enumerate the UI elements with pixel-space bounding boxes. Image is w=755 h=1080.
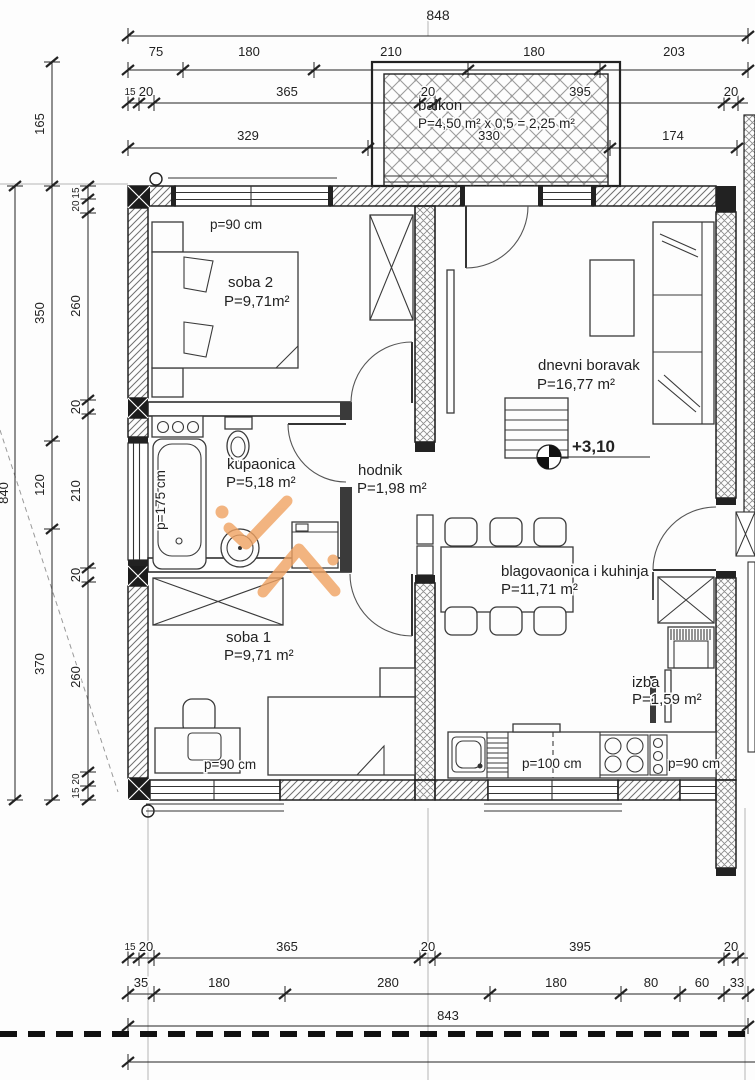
window-living [540, 186, 593, 206]
dim: 329 [237, 128, 259, 143]
counter-note-right: p=90 cm [668, 756, 720, 771]
dim: 75 [149, 44, 163, 59]
dim: 260 [68, 295, 83, 317]
entry-door [653, 507, 716, 570]
dim: 180 [523, 44, 545, 59]
soba1-wall-note: p=90 cm [204, 757, 256, 772]
soba2-label: soba 2 [228, 274, 273, 291]
soba1-door [350, 574, 412, 636]
dim: 365 [276, 84, 298, 99]
dim: 15 [124, 87, 136, 98]
dimensions-left: 165 350 120 370 840 15 20 260 20 210 20 … [0, 57, 96, 805]
soba1-area: P=9,71 m² [224, 647, 294, 664]
dim: 174 [662, 128, 684, 143]
dim: 203 [663, 44, 685, 59]
diagonal-reference-line [0, 430, 118, 792]
neighbour-fragments [736, 115, 755, 752]
coffee-table [590, 260, 634, 336]
chair [534, 607, 566, 635]
living-room-furniture [447, 222, 714, 469]
dim-bottom-total: 843 [437, 1008, 459, 1023]
fridge [658, 577, 714, 623]
izba-label: izba [632, 674, 660, 691]
bathroom-door [288, 424, 346, 482]
dim: 280 [377, 975, 399, 990]
elevation-value: +3,10 [572, 437, 615, 456]
chair [445, 607, 477, 635]
dim: 20 [421, 84, 435, 99]
kupaonica-area: P=5,18 m² [226, 474, 296, 491]
soba2-area: P=9,71m² [224, 293, 289, 310]
dim: 35 [134, 975, 148, 990]
dim: 120 [32, 474, 47, 496]
chair [490, 607, 522, 635]
balcony-door-opening [463, 186, 540, 206]
dnevni-boravak-label: dnevni boravak [538, 357, 640, 374]
dim: 20 [71, 200, 82, 212]
window-kitchen [488, 780, 618, 800]
dimensions-bottom: 15 20 365 20 395 20 35 180 280 180 80 60… [0, 939, 755, 1070]
dim: 395 [569, 939, 591, 954]
washing-machine [152, 416, 203, 437]
counter-note: p=100 cm [522, 756, 582, 771]
dim: 20 [71, 773, 82, 785]
hood [513, 724, 560, 732]
dim: 20 [724, 939, 738, 954]
window-bathroom [128, 443, 148, 560]
dim: 20 [724, 84, 738, 99]
dim: 365 [276, 939, 298, 954]
dim: 20 [68, 568, 83, 582]
hodnik-area: P=1,98 m² [357, 480, 427, 497]
blagovaonica-area: P=11,71 m² [501, 581, 578, 598]
dim: 180 [238, 44, 260, 59]
dim: 330 [478, 128, 500, 143]
dim: 15 [71, 787, 82, 799]
chair [490, 518, 522, 546]
dim: 260 [68, 666, 83, 688]
dim: 395 [569, 84, 591, 99]
dim: 15 [124, 942, 136, 953]
izba-area: P=1,59 m² [632, 691, 702, 708]
window-soba1 [150, 780, 280, 800]
soba2-wall-note: p=90 cm [210, 217, 262, 232]
double-bed [152, 252, 298, 368]
balcony-door [466, 206, 528, 268]
nightstand [152, 222, 183, 252]
dim: 210 [380, 44, 402, 59]
window-izba [680, 780, 716, 800]
single-bed [268, 697, 415, 775]
floor-plan-canvas: balkon P=4,50 m² x 0,5 = 2,25 m² p=90 cm… [0, 0, 755, 1080]
shelf-unit [668, 627, 714, 668]
chair [445, 518, 477, 546]
dim: 210 [68, 480, 83, 502]
soba2-door [351, 342, 412, 403]
dim: 33 [730, 975, 744, 990]
blagovaonica-label: blagovaonica i kuhinja [501, 563, 649, 580]
chair [534, 518, 566, 546]
dim: 370 [32, 653, 47, 675]
dim: 165 [32, 113, 47, 135]
sofa [653, 222, 714, 424]
wardrobe [370, 215, 413, 320]
dim: 20 [139, 939, 153, 954]
hodnik-label: hodnik [358, 462, 403, 479]
window-soba2 [175, 186, 330, 206]
dim: 350 [32, 302, 47, 324]
dim: 15 [71, 187, 82, 199]
radiator [447, 270, 454, 413]
kupaonica-label: kupaonica [227, 456, 296, 473]
dnevni-boravak-area: P=16,77 m² [537, 376, 615, 393]
dim: 60 [695, 975, 709, 990]
soba1-furniture [153, 578, 415, 775]
bed-pillow [380, 668, 415, 697]
dim: 20 [68, 400, 83, 414]
bathtub-note: p=175 cm [153, 470, 168, 530]
dim-top-total: 848 [426, 7, 450, 23]
soba1-label: soba 1 [226, 629, 271, 646]
dim-left-total: 840 [0, 482, 11, 504]
toilet [225, 417, 252, 461]
dim: 80 [644, 975, 658, 990]
nightstand [152, 368, 183, 397]
dim: 20 [139, 84, 153, 99]
dim: 180 [208, 975, 230, 990]
dim: 180 [545, 975, 567, 990]
dim: 20 [421, 939, 435, 954]
